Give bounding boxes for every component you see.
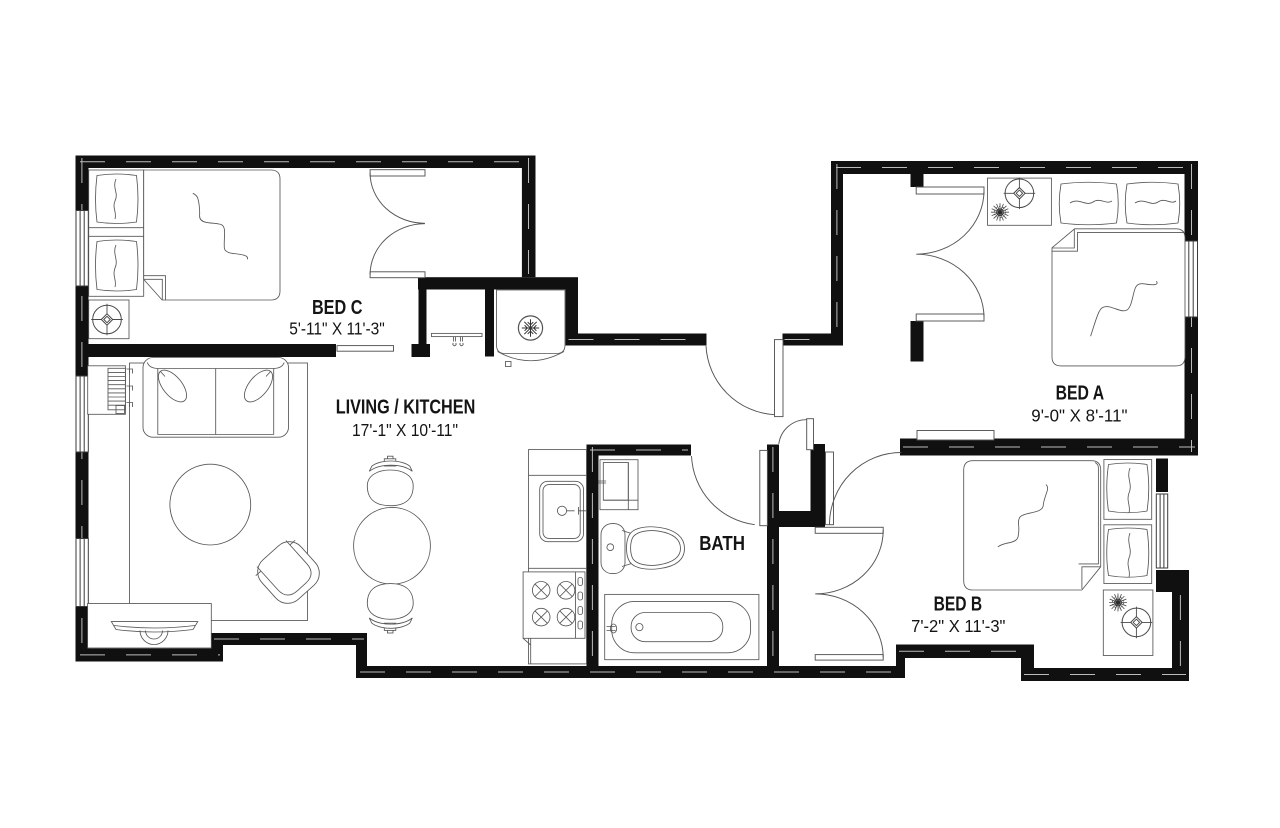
svg-text:5'-11" X 11'-3": 5'-11" X 11'-3" xyxy=(289,318,385,338)
svg-text:17'-1" X 10'-11": 17'-1" X 10'-11" xyxy=(352,420,458,440)
svg-text:BED C: BED C xyxy=(312,297,363,319)
svg-text:9'-0" X 8'-11": 9'-0" X 8'-11" xyxy=(1031,406,1127,426)
svg-text:LIVING / KITCHEN: LIVING / KITCHEN xyxy=(336,396,476,418)
svg-text:7'-2" X 11'-3": 7'-2" X 11'-3" xyxy=(911,616,1005,636)
svg-text:BED B: BED B xyxy=(934,593,983,615)
svg-text:BATH: BATH xyxy=(699,533,745,555)
svg-text:BED A: BED A xyxy=(1056,383,1105,405)
